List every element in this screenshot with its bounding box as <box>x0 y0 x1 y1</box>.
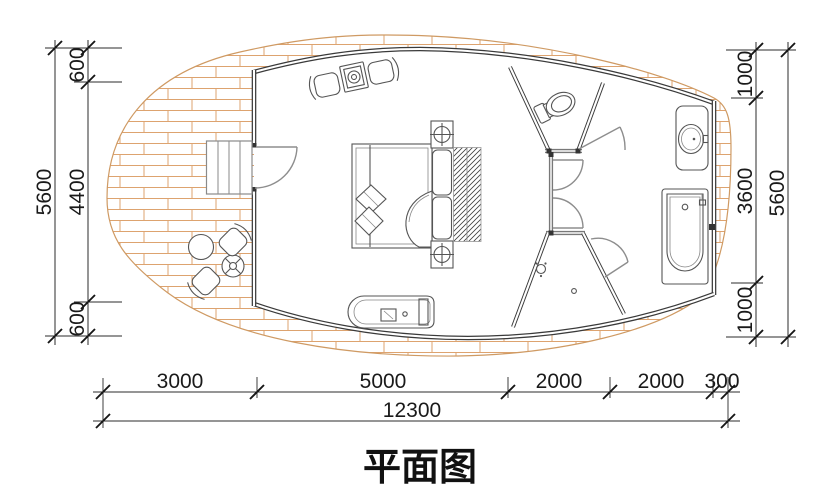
pillow <box>433 197 452 239</box>
dim-label: 12300 <box>383 399 441 422</box>
dim-right: 1000 3600 1000 5600 <box>726 42 796 347</box>
entry-stairs <box>207 141 253 194</box>
dim-label: 4400 <box>66 169 89 216</box>
floor-plan-drawing: 600 4400 600 5600 1000 3600 1000 5600 30… <box>0 0 837 496</box>
bench-counter <box>348 296 434 328</box>
patio-side-table <box>222 255 244 277</box>
side-table <box>340 62 369 92</box>
pillow <box>433 150 452 195</box>
dim-label: 1000 <box>734 51 757 98</box>
dim-label: 2000 <box>536 370 583 393</box>
dim-label: 600 <box>66 47 89 82</box>
drawing-title: 平面图 <box>363 447 477 489</box>
dim-label: 5600 <box>33 169 56 216</box>
dim-label: 600 <box>66 301 89 336</box>
dim-label: 3600 <box>734 168 757 215</box>
dim-label: 2000 <box>638 370 685 393</box>
patio-round-table <box>189 235 214 260</box>
dim-label: 5600 <box>766 170 789 217</box>
dim-bottom: 3000 5000 2000 2000 300 12300 <box>93 370 740 428</box>
dim-label: 1000 <box>734 287 757 334</box>
bathtub <box>662 189 708 284</box>
floor-plan-canvas: 600 4400 600 5600 1000 3600 1000 5600 30… <box>0 0 837 496</box>
dim-label: 5000 <box>360 370 407 393</box>
washbasin <box>676 106 708 170</box>
dim-label: 300 <box>704 370 739 393</box>
dim-label: 3000 <box>157 370 204 393</box>
